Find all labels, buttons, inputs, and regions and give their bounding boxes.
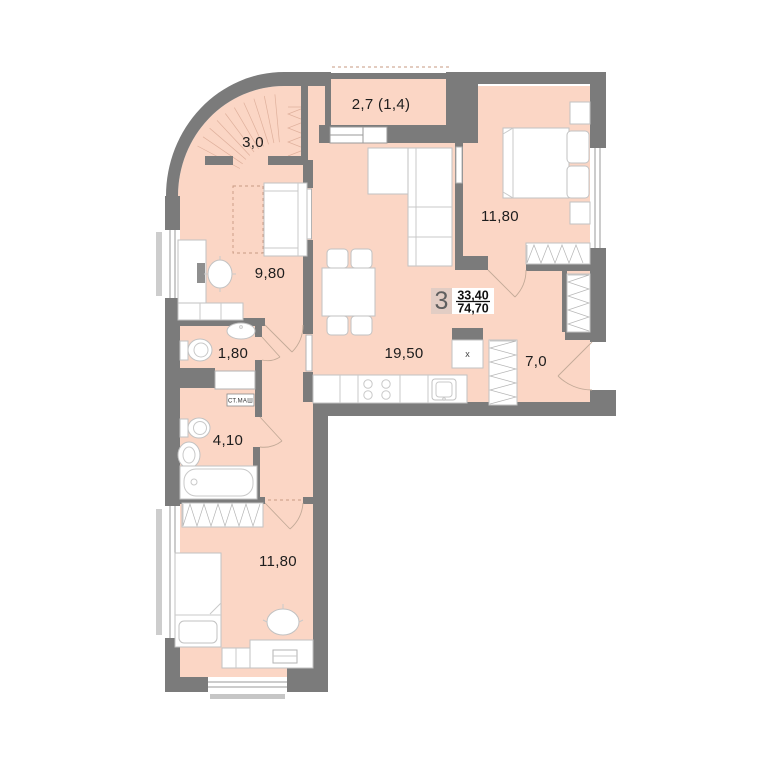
label-hallway: 7,0 <box>525 353 547 370</box>
window-left-upper <box>156 230 180 298</box>
cabinet <box>178 303 243 320</box>
corner-sofa-seat <box>368 148 408 194</box>
nightstand <box>570 202 590 224</box>
balcony-door-window <box>330 127 387 143</box>
bathtub <box>180 466 257 499</box>
badge-rooms-count: 3 <box>435 287 449 315</box>
pedestal-sink <box>178 442 200 468</box>
kitchen-counter <box>313 375 467 403</box>
window-bottom <box>208 677 287 699</box>
label-wc: 1,80 <box>218 345 248 362</box>
washing-machine-label: ст.маш <box>228 399 253 405</box>
wash-basin <box>227 323 255 339</box>
apartment-info-badge: 3 33,40 74,70 <box>431 287 494 316</box>
label-bedroom-bottom: 11,80 <box>259 553 297 570</box>
pillow <box>567 131 589 163</box>
vent-mark-label: x <box>465 349 470 359</box>
toilet <box>180 339 212 361</box>
wardrobe <box>182 503 263 527</box>
label-corner-loggia: 3,0 <box>242 134 264 151</box>
door-leaf-bedroom-top <box>456 147 462 183</box>
wardrobe <box>526 243 590 264</box>
nightstand <box>570 102 590 124</box>
dining-chair <box>327 316 348 335</box>
window-bedroom-top-right <box>590 148 606 248</box>
laptop <box>273 650 297 663</box>
label-room-left: 9,80 <box>255 265 285 282</box>
dining-chair <box>351 316 372 335</box>
label-bedroom-top: 11,80 <box>481 208 519 225</box>
single-bed <box>175 553 221 647</box>
floor-plan-canvas: x <box>0 0 768 768</box>
toilet <box>180 418 210 438</box>
dining-chair <box>327 249 348 268</box>
door-leaf-corridor <box>306 335 312 371</box>
floor-plan: x <box>0 0 768 768</box>
dining-chair <box>351 249 372 268</box>
label-bathroom: 4,10 <box>213 432 243 449</box>
label-kitchen-living: 19,50 <box>384 345 423 362</box>
badge-living-area: 33,40 <box>457 289 488 303</box>
sofa <box>264 183 307 256</box>
monitor <box>197 263 205 283</box>
badge-total-area: 74,70 <box>457 302 488 316</box>
pillow <box>179 621 217 643</box>
label-balcony: 2,7 (1,4) <box>352 96 411 113</box>
pillow <box>567 166 589 198</box>
dining-table <box>322 268 375 316</box>
kitchen-sink <box>432 379 456 400</box>
